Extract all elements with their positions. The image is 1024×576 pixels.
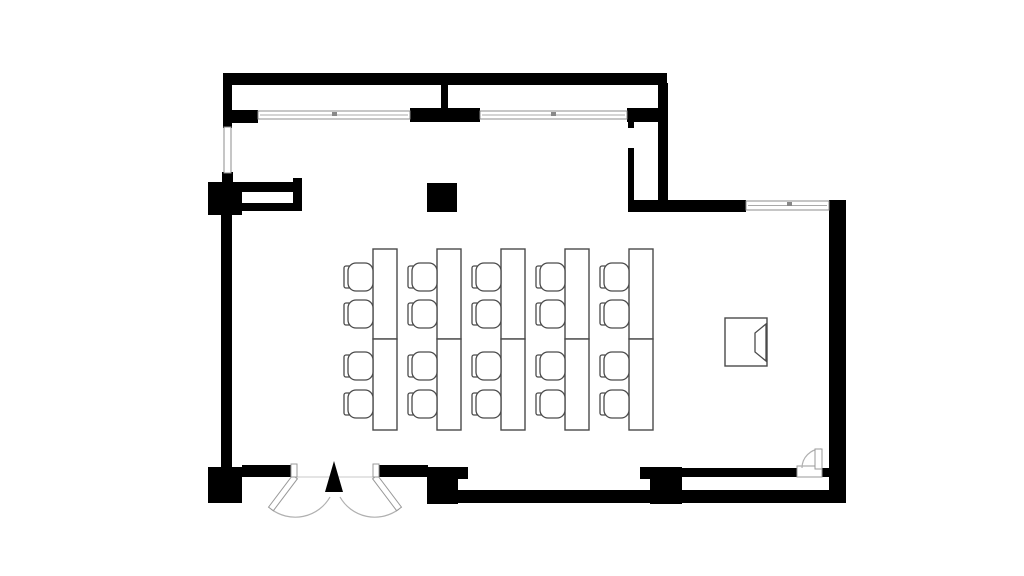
desk-table-5b	[629, 339, 653, 430]
chair-seat	[348, 300, 373, 328]
chair-seat	[604, 263, 629, 291]
side-door-leaf	[815, 449, 822, 469]
desk-table-3b	[501, 339, 525, 430]
chair-seat	[540, 300, 565, 328]
pier-bottom-1	[427, 467, 458, 504]
chair-seat	[476, 352, 501, 380]
wall-left-lower	[221, 212, 232, 467]
entrance-door-leaf	[269, 475, 298, 511]
chair-seat	[604, 300, 629, 328]
wall-bottom-door-right	[378, 465, 428, 477]
desk-table-3a	[501, 249, 525, 339]
wall-bottom-door-left	[242, 465, 292, 477]
wall-top-right-section	[628, 200, 746, 212]
chair-seat	[476, 263, 501, 291]
sideboard-bottom	[242, 203, 302, 211]
wall-right	[829, 200, 846, 503]
window-sill-stub-mid	[410, 108, 480, 122]
window-mid-pier	[441, 75, 448, 110]
chair-seat	[540, 390, 565, 418]
desk-table-1b	[373, 339, 397, 430]
chair-seat	[412, 263, 437, 291]
structural-column	[427, 183, 457, 212]
entrance-door-jamb	[373, 464, 379, 477]
chair-seat	[540, 352, 565, 380]
desk-table-4a	[565, 249, 589, 339]
window-sill-stub-left	[231, 110, 258, 123]
chair-seat	[540, 263, 565, 291]
chair-seat	[348, 390, 373, 418]
window-top-2-mullion-tick	[551, 112, 556, 116]
entrance-door-leaf	[373, 475, 402, 511]
chair-seat	[604, 352, 629, 380]
window-left	[224, 127, 231, 173]
window-end-tick-left	[222, 172, 233, 183]
wall-left-upper	[223, 85, 232, 128]
wall-cavity-outer-leaf	[658, 83, 668, 205]
wall-bottom-inner	[682, 468, 797, 477]
desk-table-4b	[565, 339, 589, 430]
desk-table-1a	[373, 249, 397, 339]
wall-cavity-inner-leaf	[628, 148, 634, 202]
desk-table-2b	[437, 339, 461, 430]
desk-table-2a	[437, 249, 461, 339]
chair-seat	[604, 390, 629, 418]
chair-seat	[412, 390, 437, 418]
window-right-section-mullion-tick	[787, 202, 792, 206]
floor-plan-drawing	[0, 0, 1024, 576]
chair-seat	[412, 300, 437, 328]
entrance-door-jamb	[291, 464, 297, 477]
wall-bottom-outer	[458, 490, 846, 503]
chair-seat	[348, 352, 373, 380]
floor-plan	[0, 0, 1024, 576]
wall-cavity-inner-tick	[628, 119, 634, 128]
desk-table-5a	[629, 249, 653, 339]
window-top-1-mullion-tick	[332, 112, 337, 116]
chair-seat	[476, 300, 501, 328]
jamb-hook-1	[458, 467, 468, 479]
jamb-hook-2	[640, 467, 650, 479]
chair-seat	[348, 263, 373, 291]
pier-sideboard	[208, 182, 242, 215]
chair-seat	[412, 352, 437, 380]
chair-seat	[476, 390, 501, 418]
pier-bottom-left	[208, 467, 242, 503]
wall-bottom-inner-right	[822, 468, 830, 477]
